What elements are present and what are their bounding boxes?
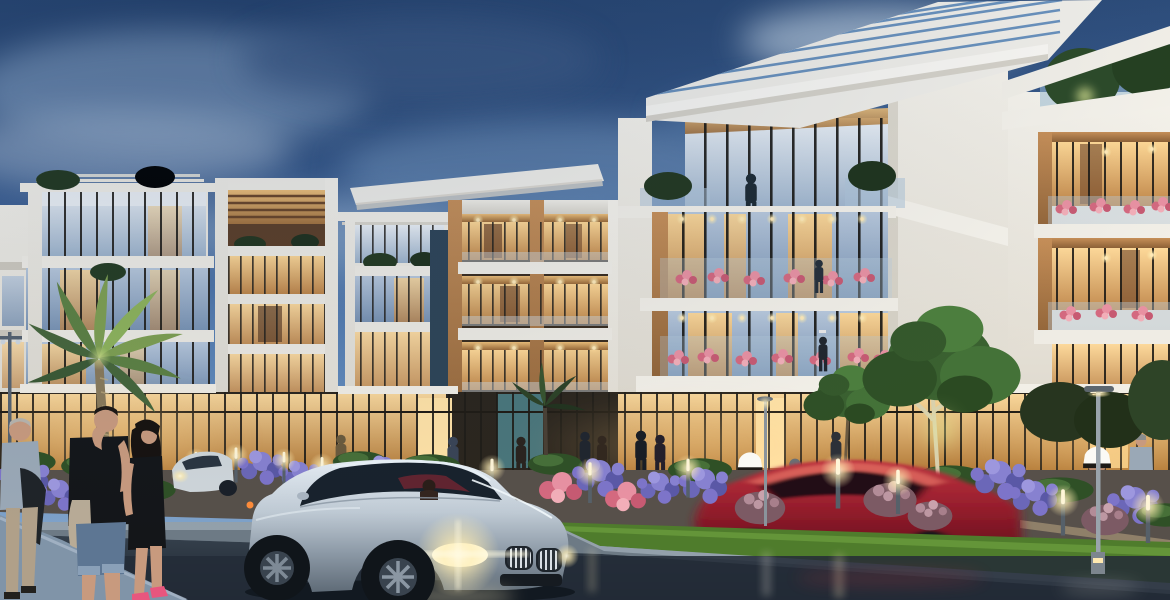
scene-canvas	[0, 0, 1170, 600]
dusk-residential-render	[0, 0, 1170, 600]
vignette	[0, 0, 1170, 600]
